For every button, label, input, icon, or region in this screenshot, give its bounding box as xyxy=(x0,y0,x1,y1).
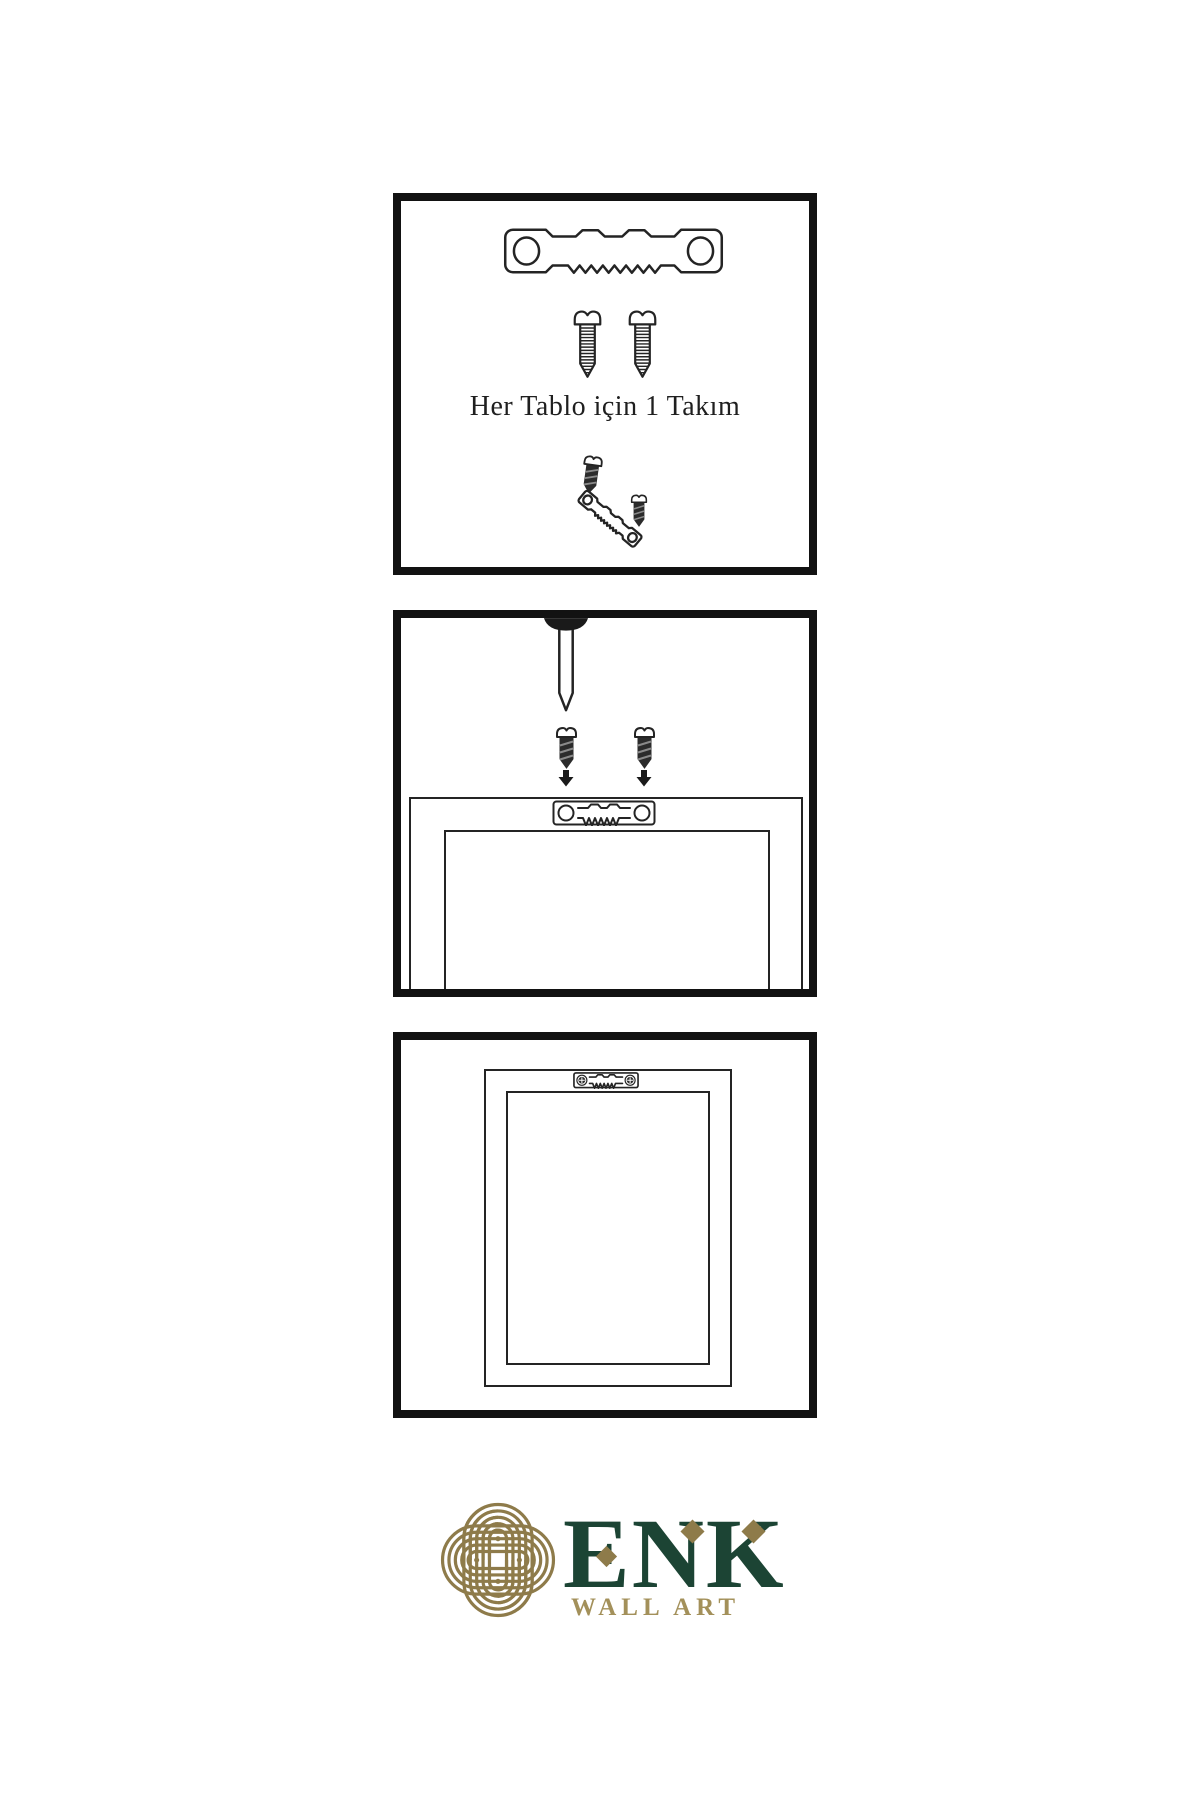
instruction-sheet: Her Tablo için 1 Takım xyxy=(0,0,1200,1800)
kit-caption: Her Tablo için 1 Takım xyxy=(401,391,809,423)
sawtooth-hanger-icon xyxy=(552,800,656,826)
step-2-panel xyxy=(393,610,817,997)
frame-inner-outline xyxy=(506,1091,710,1365)
step-3-panel xyxy=(393,1032,817,1418)
dark-screw-icon xyxy=(555,725,578,769)
dark-screw-icon xyxy=(578,453,604,496)
brand-subtitle: WALL ART xyxy=(571,1595,740,1620)
mounted-hanger-icon xyxy=(573,1072,639,1089)
screw-icon xyxy=(627,307,658,380)
down-arrow-icon xyxy=(636,770,652,787)
frame-inner-outline xyxy=(444,830,770,997)
nail-icon xyxy=(543,618,589,718)
dark-screw-icon xyxy=(633,725,656,769)
knot-icon xyxy=(434,1496,562,1624)
down-arrow-icon xyxy=(558,770,574,787)
dark-screw-icon xyxy=(630,493,648,527)
sawtooth-hanger-icon xyxy=(497,222,730,280)
screw-icon xyxy=(572,307,603,380)
step-1-panel: Her Tablo için 1 Takım xyxy=(393,193,817,575)
